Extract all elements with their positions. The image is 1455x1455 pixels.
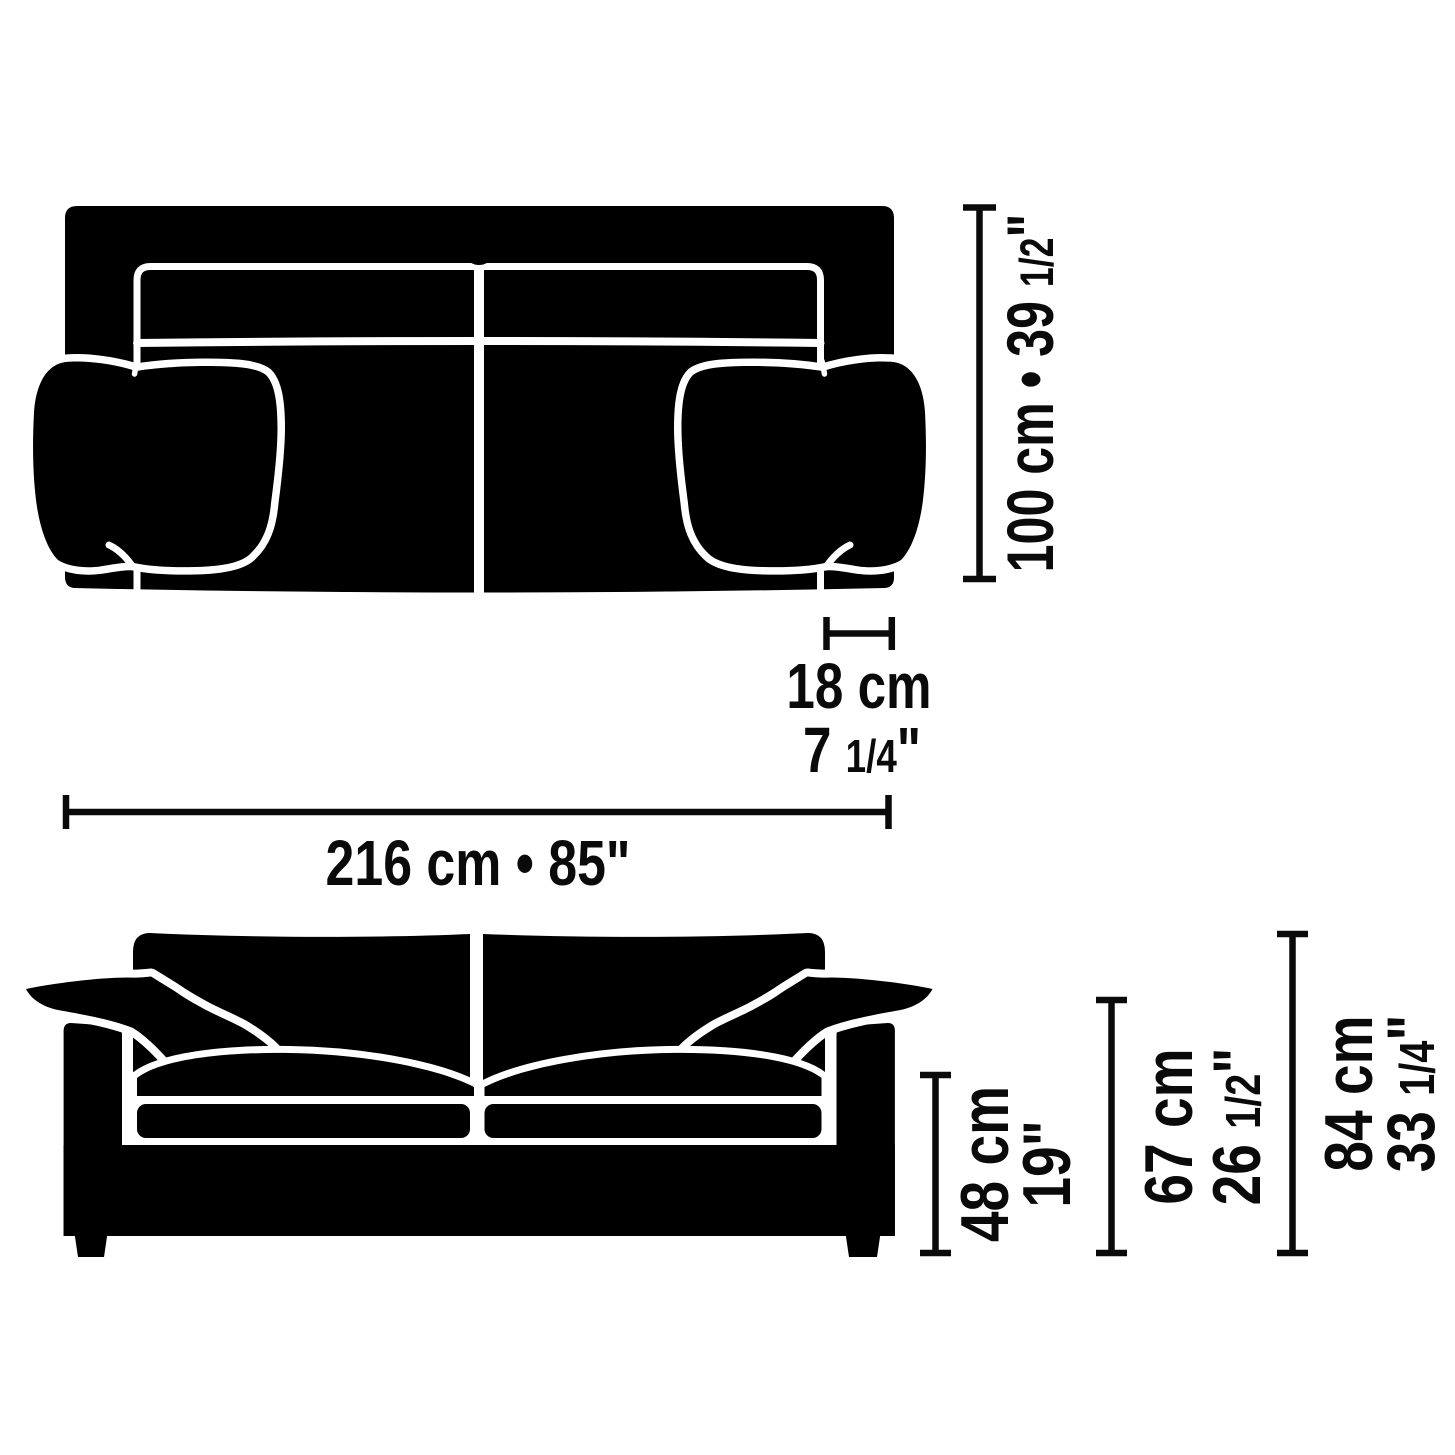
svg-text:19": 19" bbox=[1010, 1120, 1086, 1207]
svg-text:18 cm: 18 cm bbox=[786, 652, 931, 723]
svg-text:67 cm: 67 cm bbox=[1132, 1048, 1208, 1204]
svg-text:216 cm • 85": 216 cm • 85" bbox=[326, 828, 631, 899]
